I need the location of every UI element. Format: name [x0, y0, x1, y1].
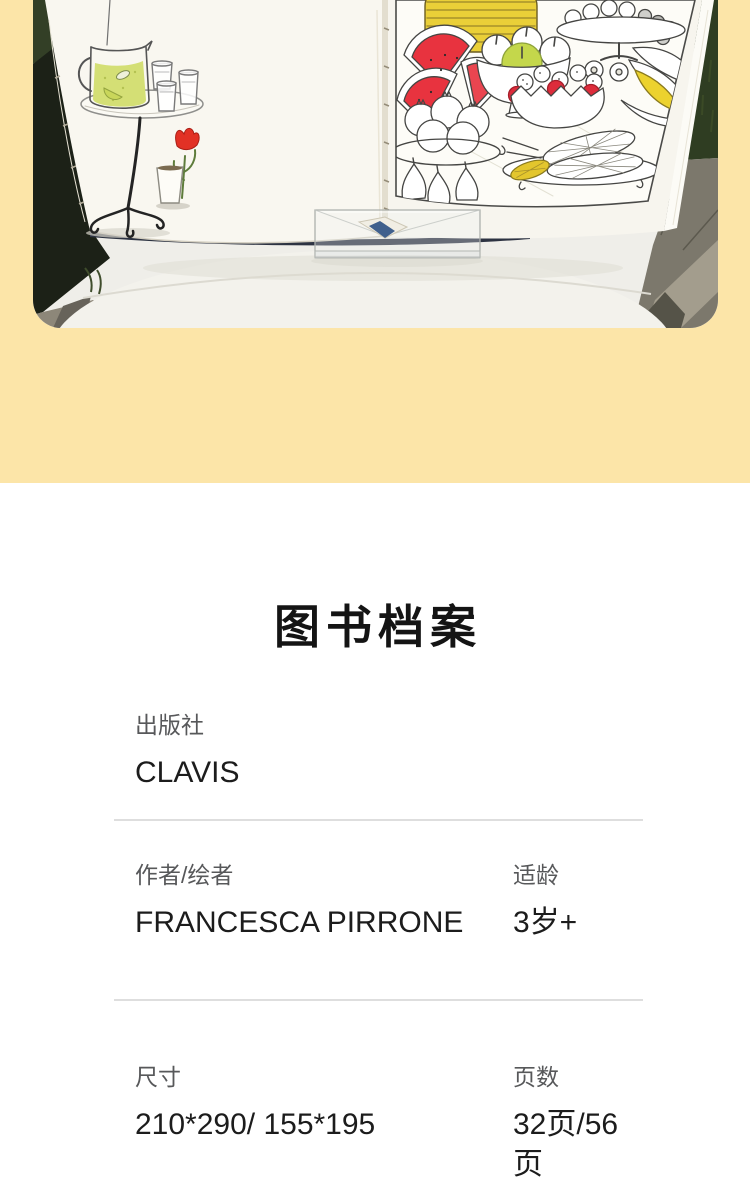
author-label: 作者/绘者 — [135, 860, 513, 890]
info-row-size-pages: 尺寸 210*290/ 155*195 页数 32页/56页 — [114, 1001, 643, 1182]
field-age: 适龄 3岁+ — [513, 860, 643, 943]
field-pages: 页数 32页/56页 — [513, 1062, 643, 1182]
book-info: 出版社 CLAVIS 作者/绘者 FRANCESCA PIRRONE 适龄 3岁… — [114, 710, 643, 1182]
age-value: 3岁+ — [513, 903, 643, 943]
field-publisher: 出版社 CLAVIS — [135, 710, 513, 793]
pages-value: 32页/56页 — [513, 1105, 643, 1182]
field-size: 尺寸 210*290/ 155*195 — [135, 1062, 513, 1182]
info-row-publisher: 出版社 CLAVIS — [114, 710, 643, 821]
author-value: FRANCESCA PIRRONE — [135, 903, 513, 943]
age-label: 适龄 — [513, 860, 643, 890]
product-page: 图书档案 出版社 CLAVIS 作者/绘者 FRANCESCA PIRRONE … — [0, 0, 750, 1182]
field-author: 作者/绘者 FRANCESCA PIRRONE — [135, 860, 513, 943]
publisher-value: CLAVIS — [135, 753, 513, 793]
size-value: 210*290/ 155*195 — [135, 1105, 513, 1145]
book-photo — [33, 0, 718, 328]
book-profile-section: 图书档案 出版社 CLAVIS 作者/绘者 FRANCESCA PIRRONE … — [0, 483, 750, 1182]
section-title: 图书档案 — [0, 483, 750, 650]
hero-section — [0, 0, 750, 483]
size-label: 尺寸 — [135, 1062, 513, 1092]
info-row-author-age: 作者/绘者 FRANCESCA PIRRONE 适龄 3岁+ — [114, 821, 643, 1001]
book-photo-illustration — [33, 0, 718, 328]
publisher-label: 出版社 — [135, 710, 513, 740]
pages-label: 页数 — [513, 1062, 643, 1092]
